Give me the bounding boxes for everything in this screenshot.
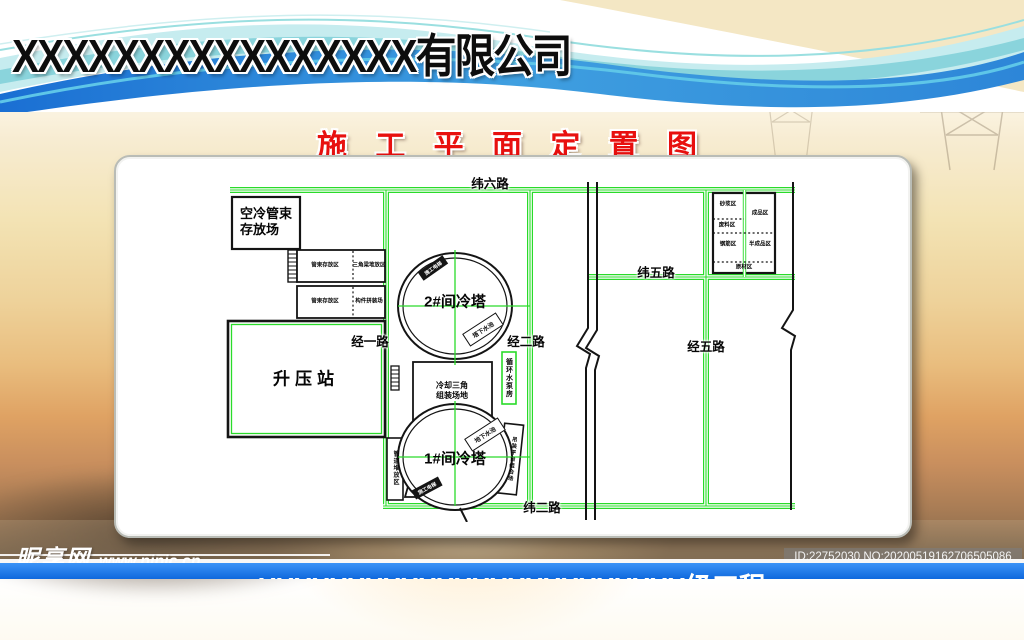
area-tower2: 2#间冷塔 [424,294,486,313]
rebar-zone5: 半成品区 [749,242,771,249]
zone-component: 构件拼装场 [355,299,383,306]
area-booster-station: 升压站 [273,368,339,389]
zone-tube-top: 管束存放区 [311,263,339,270]
rebar-zone1: 砂浆区 [720,202,737,209]
rebar-zone3: 废料区 [719,223,736,230]
company-title: XXXXXXXXXXXXXXXX有限公司 [12,20,571,86]
area-pump-house: 循环水泵房 [506,358,513,398]
area-cooling-triangle: 冷却三角 组装场地 [436,381,468,401]
rebar-zone2: 成品区 [752,211,769,218]
area-tower1: 1#间冷塔 [424,451,486,470]
rebar-zone6: 原材区 [736,265,753,272]
site-plan: 纬六路 纬五路 纬二路 经一路 经二路 经五路 空冷管束 存放场 管束存放区 三… [220,170,820,522]
road-label-wei2: 纬二路 [523,501,561,517]
area-pipe-storage: 管道堆放区 [392,451,398,486]
zone-tube-bottom: 管束存放区 [311,299,339,306]
road-label-wei5: 纬五路 [637,266,675,282]
road-label-wei6: 纬六路 [471,177,509,193]
footer-blue-bar: XXXXXXXXXXXXXXXXXXXXXXXX级工程 [0,563,1024,579]
footer-banner-text: XXXXXXXXXXXXXXXXXXXXXXXX级工程 [258,565,765,579]
road-label-jing2: 经二路 [507,335,545,351]
rebar-zone4: 钢筋区 [720,242,737,249]
road-label-jing5: 经五路 [687,340,725,356]
power-pylon-silhouette [920,50,1024,530]
area-air-cooling-storage: 空冷管束 存放场 [240,206,292,239]
zone-triangle: 三角梁堆放区 [352,263,385,270]
road-label-jing1: 经一路 [351,335,389,351]
poster-page: { "header": { "company_name": "XXXXXXXXX… [0,0,1024,579]
